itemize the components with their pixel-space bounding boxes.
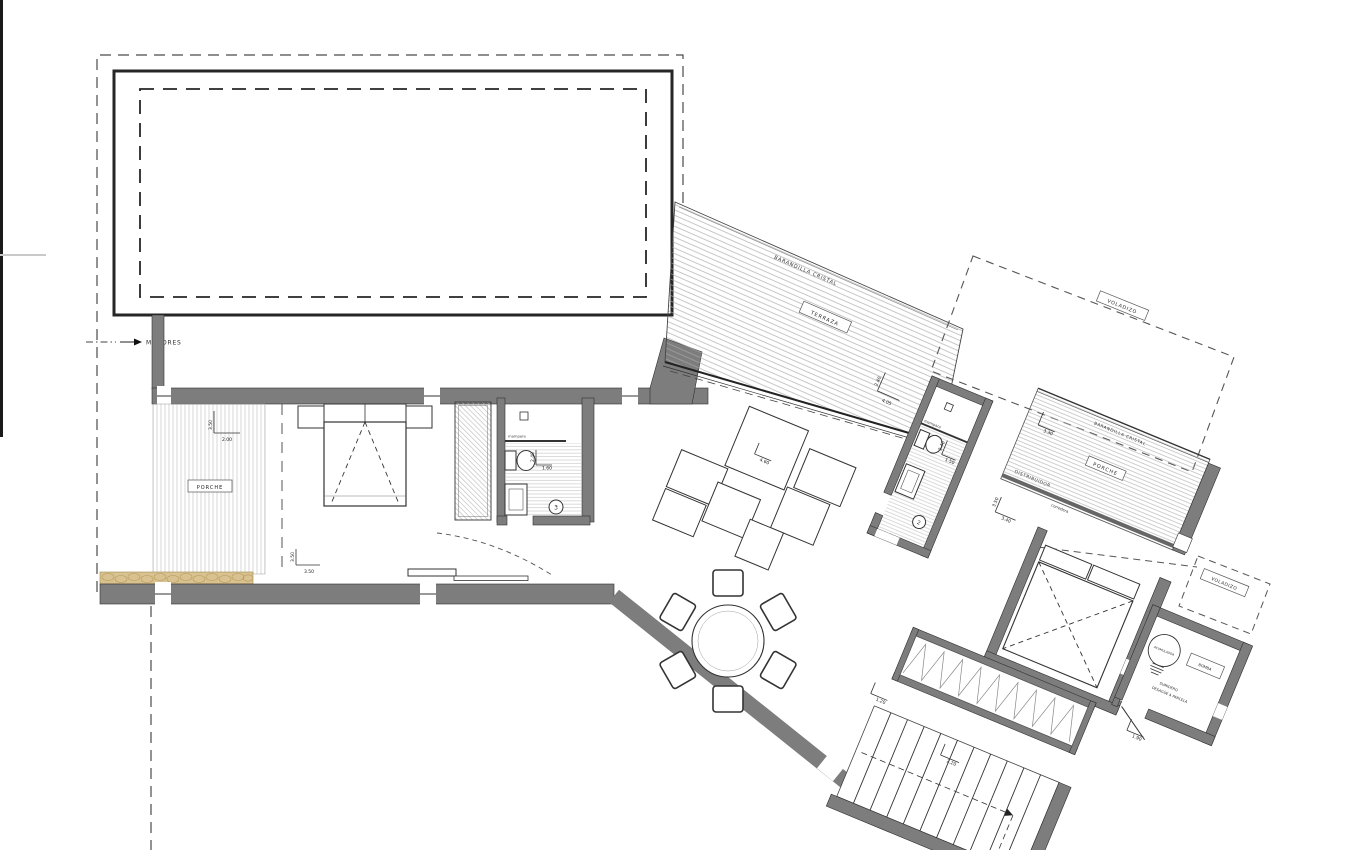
floor-plan-drawing: MOTORES PORCHE 3.50 2.00 <box>0 0 1360 850</box>
porch-right: BARANDILLA CRISTAL PORCHE 3.30 corredera <box>998 388 1223 562</box>
toilet-tank-icon <box>505 451 516 470</box>
motores-annotation: MOTORES <box>86 339 182 347</box>
svg-text:3.50: 3.50 <box>304 569 314 575</box>
svg-text:3.40: 3.40 <box>1000 515 1012 524</box>
wardrobe1-icon <box>455 402 491 520</box>
shower-screen-label: mampara <box>508 435 526 439</box>
sand-path-strip <box>100 572 253 584</box>
dining-table-icon <box>692 605 764 677</box>
living-room-furniture: 4.60 <box>652 389 862 586</box>
wall-rooms-bottom <box>100 584 614 604</box>
svg-text:3.50: 3.50 <box>290 552 296 562</box>
voladizo-small-label-group: VOLADIZO <box>1200 569 1249 597</box>
sliding-door-leaf-icon <box>408 569 456 576</box>
wall-bath3-left <box>497 398 505 522</box>
bed-icon <box>324 422 406 506</box>
stairs-door-dimension: 1.20 <box>868 682 892 706</box>
svg-text:1.60: 1.60 <box>542 466 552 472</box>
bathroom3: mampara 2.40 1.60 3 <box>497 398 594 525</box>
shower-drain-icon <box>520 412 528 420</box>
bath3-badge: 3 <box>554 505 558 512</box>
sliding-door-leaf-icon <box>454 576 528 581</box>
nightstand-icon <box>298 406 324 428</box>
motores-arrow-icon <box>134 339 142 346</box>
svg-text:1.20: 1.20 <box>875 697 887 706</box>
voladizo-large-label-group: VOLADIZO <box>1096 291 1148 321</box>
porch-left-label: PORCHE <box>197 485 224 491</box>
utility-room: ACUMULADOR BOMBA SUMIDERO DESAGÜE A PARC… <box>1102 605 1252 769</box>
nightstand-icon <box>406 406 432 428</box>
door-gap-angled <box>822 762 838 775</box>
svg-text:2.40: 2.40 <box>530 452 536 462</box>
coffee-table-icon <box>725 406 809 490</box>
vanity-icon <box>505 484 527 515</box>
svg-text:3.50: 3.50 <box>208 420 214 430</box>
floor-plan-page: MOTORES PORCHE 3.50 2.00 <box>0 0 1360 850</box>
pool-outline <box>114 71 672 315</box>
svg-text:2.00: 2.00 <box>222 437 232 443</box>
wall-bath3-right <box>582 398 594 522</box>
wall-corridor-left <box>152 315 164 389</box>
bedroom1-dimension: 3.50 3.50 <box>290 549 320 575</box>
hall-dimension: 3.50 3.40 <box>987 495 1021 527</box>
